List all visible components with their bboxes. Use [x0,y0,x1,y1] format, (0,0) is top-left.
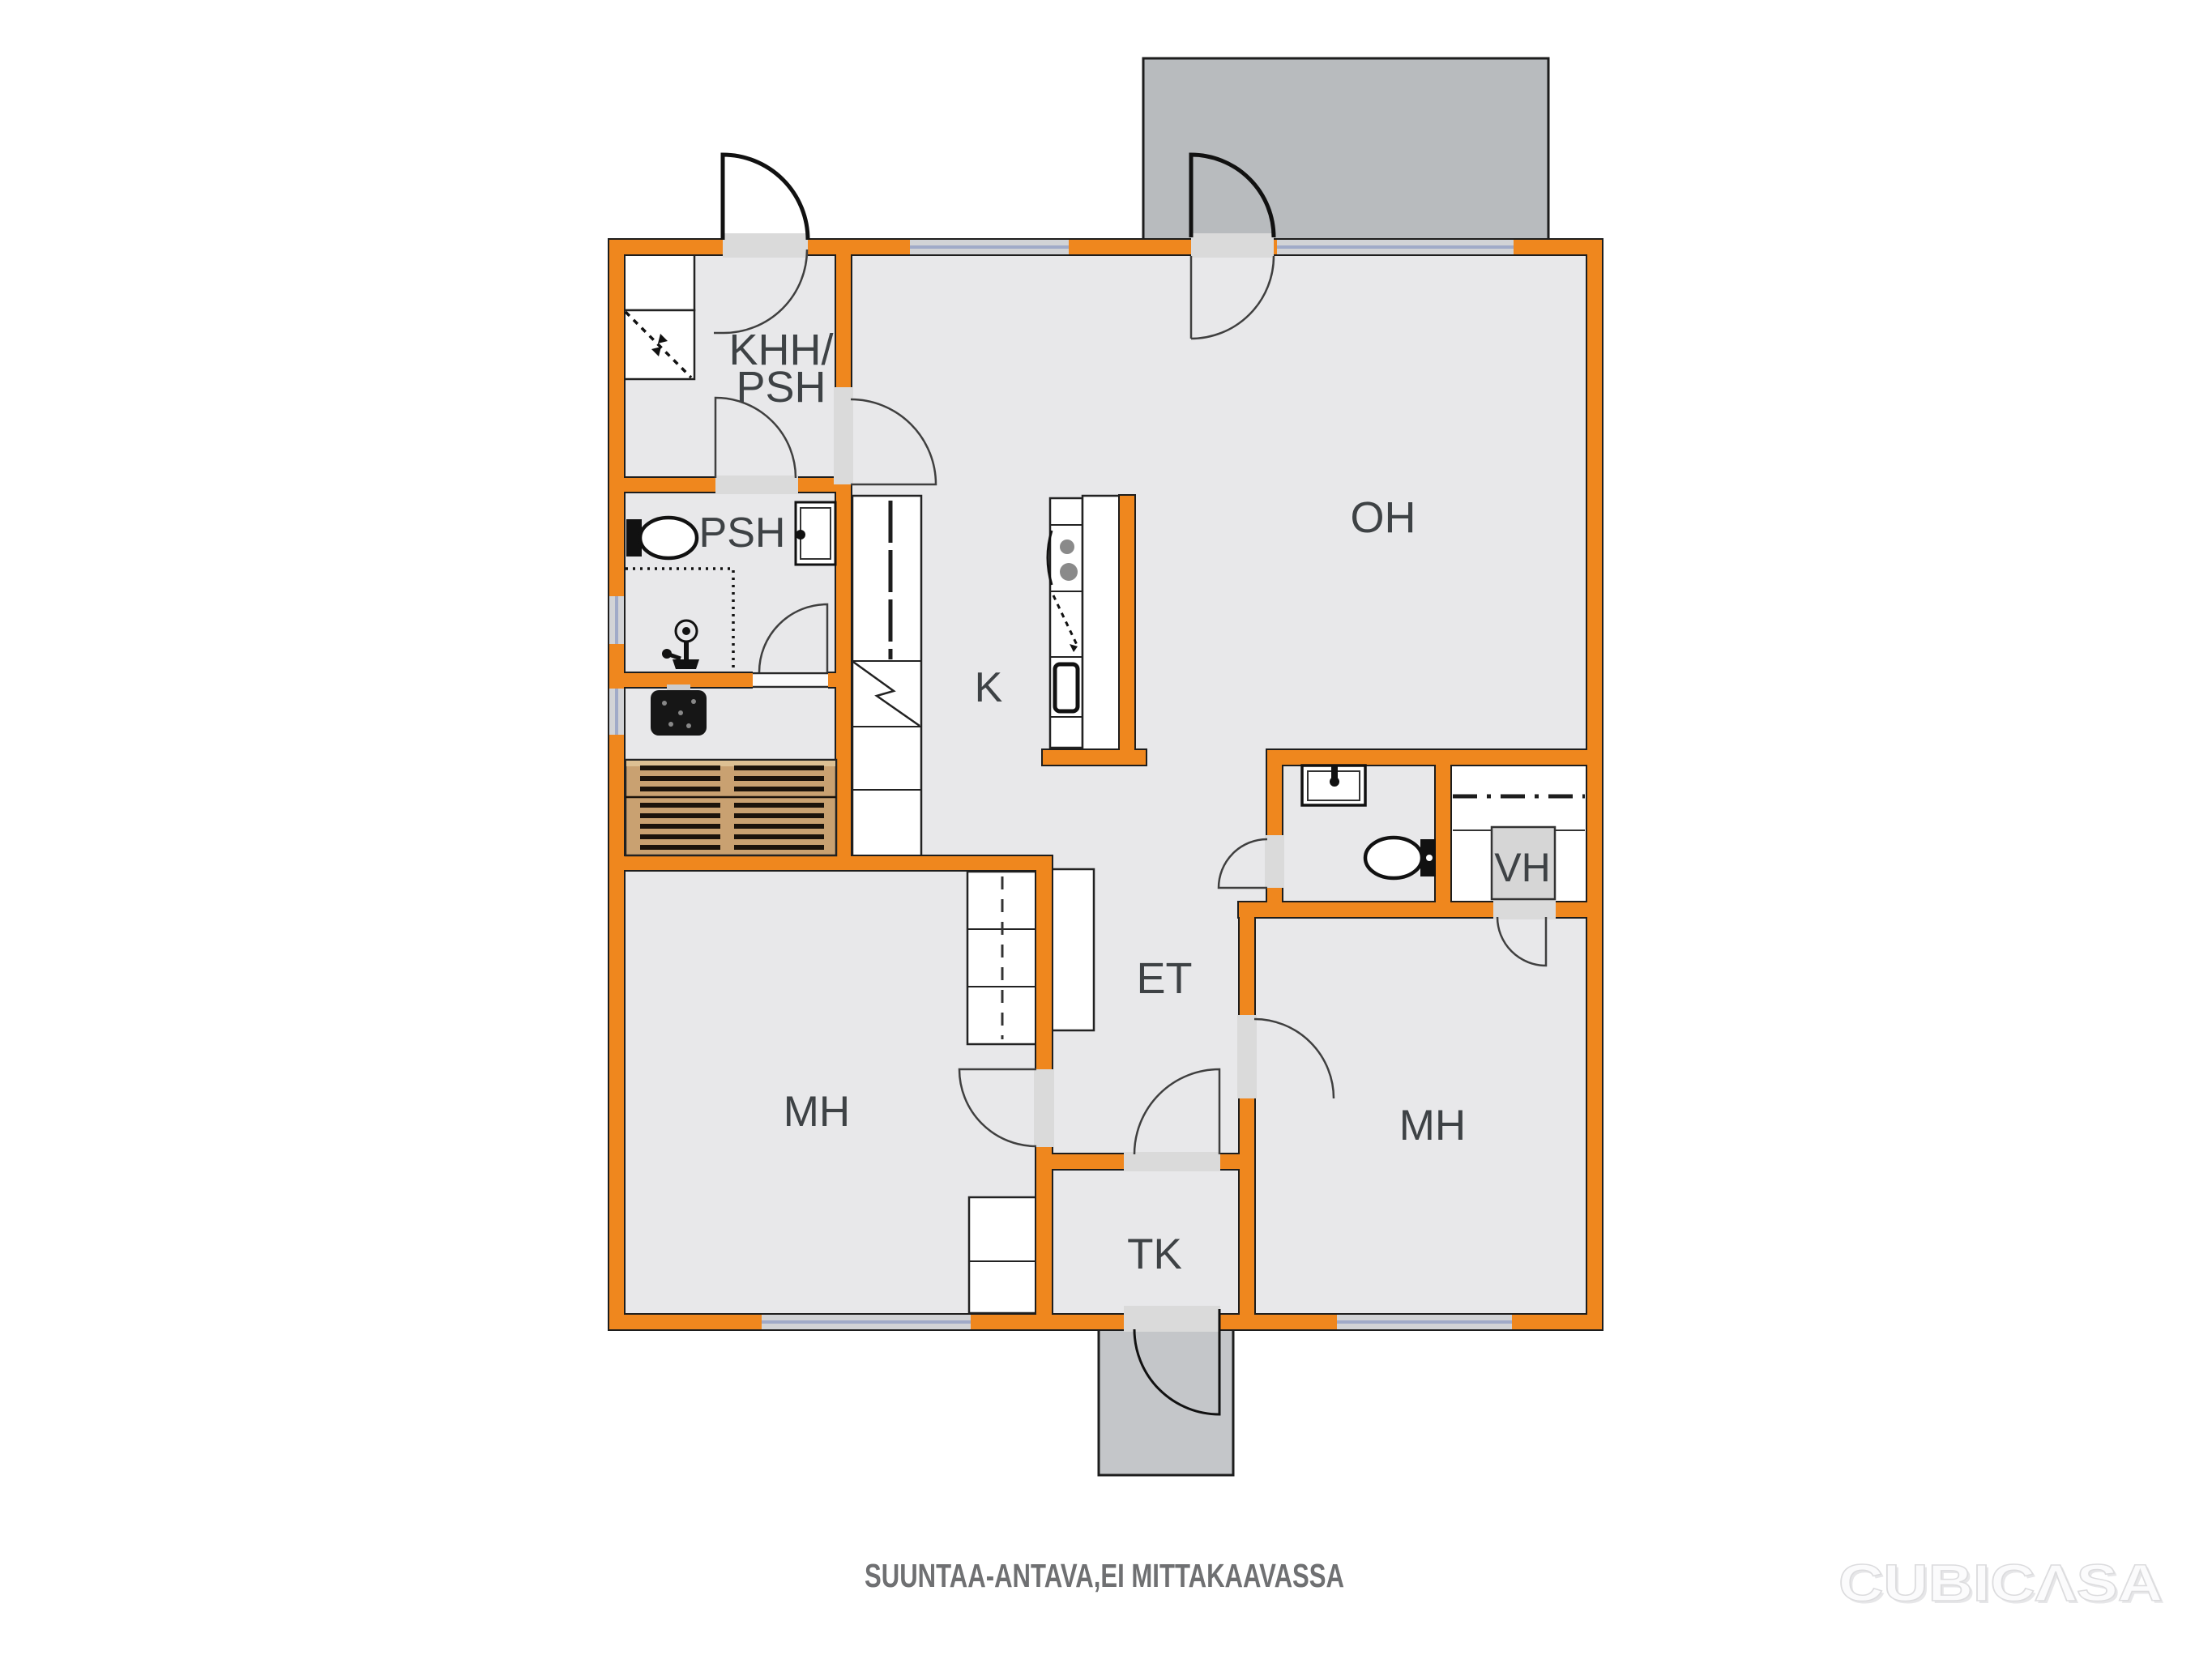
svg-text:K: K [975,664,1003,711]
svg-text:PSH: PSH [736,363,826,412]
svg-text:OH: OH [1351,493,1416,542]
svg-text:CUBICΛSA: CUBICΛSA [1838,1554,2163,1612]
svg-text:PSH: PSH [699,510,786,557]
svg-text:MH: MH [1399,1102,1466,1149]
svg-text:MH: MH [784,1088,850,1136]
svg-text:ET: ET [1136,954,1192,1003]
svg-text:TK: TK [1127,1230,1182,1278]
svg-text:SUUNTAA-ANTAVA,EI MITTAKAAVASS: SUUNTAA-ANTAVA,EI MITTAKAAVASSA [865,1557,1344,1594]
svg-text:VH: VH [1494,845,1550,890]
